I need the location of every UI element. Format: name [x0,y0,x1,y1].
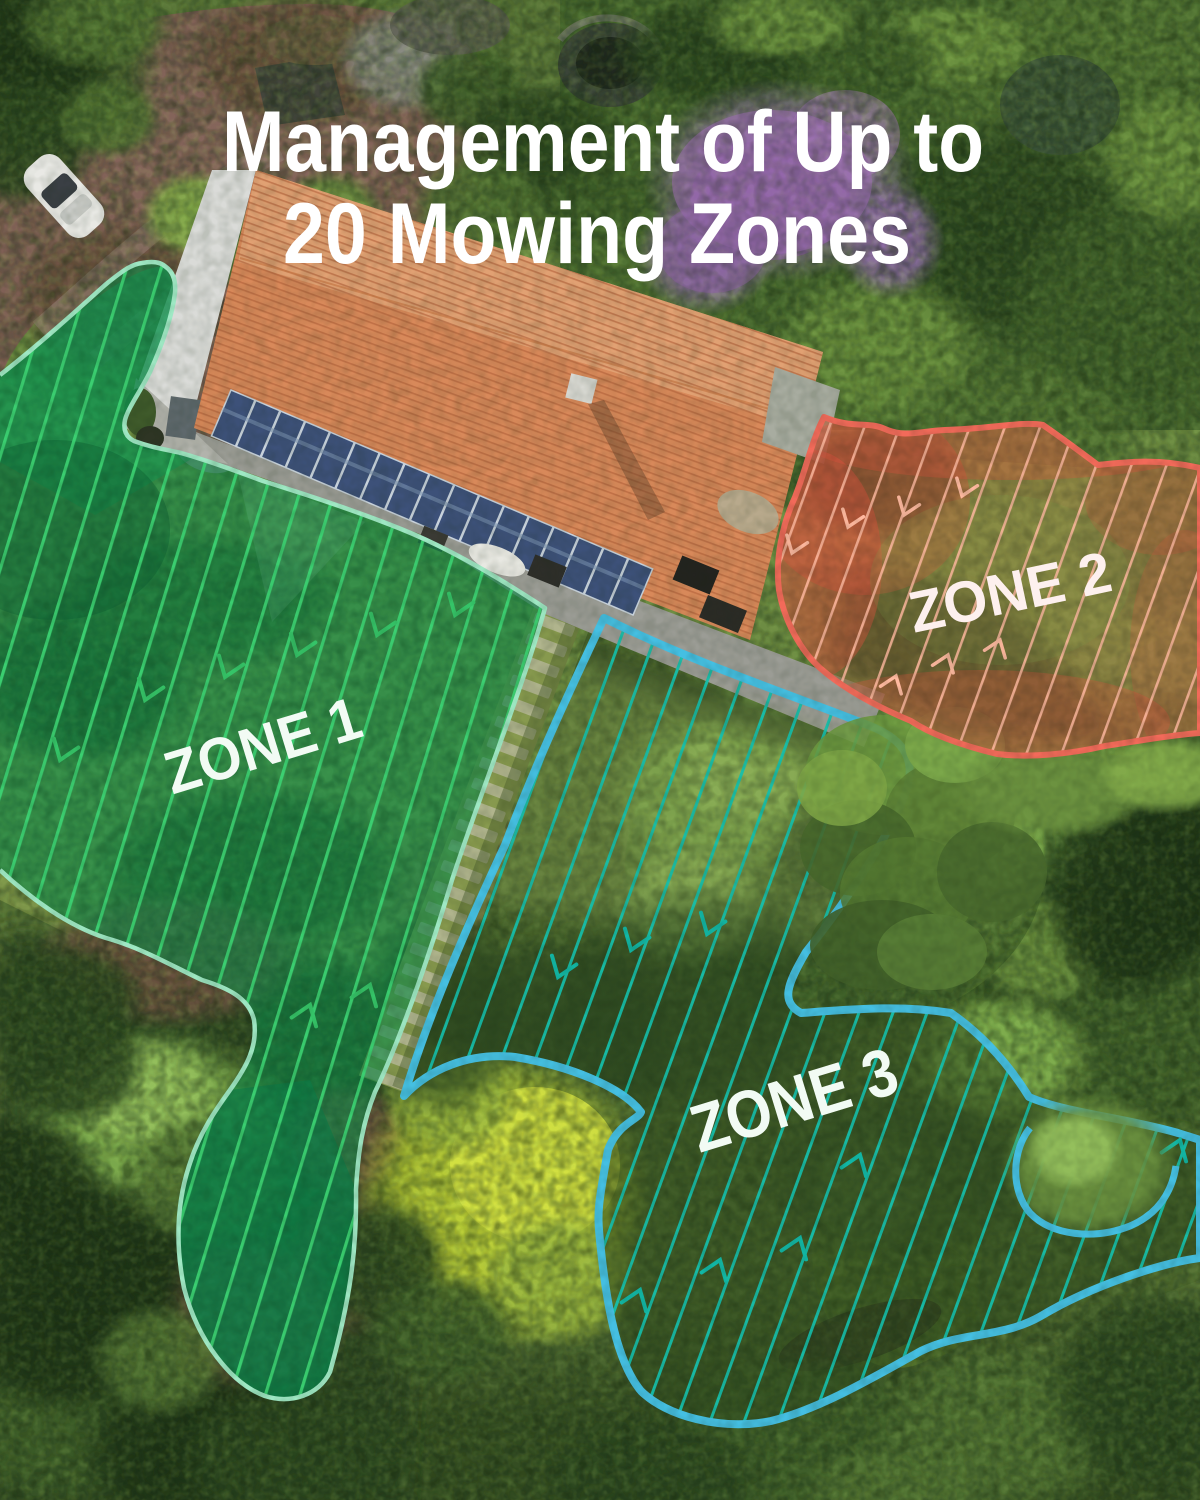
svg-text:Management of Up to: Management of Up to [222,94,984,190]
svg-text:20 Mowing Zones: 20 Mowing Zones [283,186,911,282]
